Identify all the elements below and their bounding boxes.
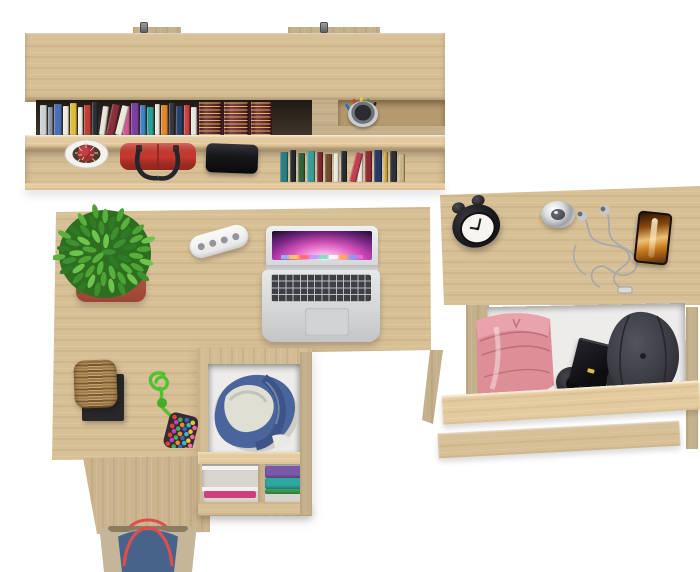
book-spine xyxy=(250,102,272,135)
book-spine xyxy=(40,105,47,135)
book-spine xyxy=(317,152,323,182)
book-spine xyxy=(169,103,175,135)
book-spine xyxy=(307,151,315,182)
book-spine xyxy=(325,154,332,182)
white-pot-red-cactus xyxy=(64,139,109,169)
book-spine xyxy=(48,107,53,135)
book-spine xyxy=(78,107,83,135)
laptop-dock xyxy=(281,255,363,259)
book-spine xyxy=(334,153,339,182)
drawer-front-edge xyxy=(198,452,312,464)
book-spine xyxy=(399,154,405,182)
smartphone-screen xyxy=(636,213,671,264)
folded-clothes-stack xyxy=(265,466,305,498)
book-spine xyxy=(147,107,154,135)
shelf-bottom-edge xyxy=(25,183,445,190)
wall-hook xyxy=(140,22,148,33)
book-spine xyxy=(298,153,305,182)
book-spine xyxy=(198,102,222,135)
clock-center xyxy=(476,227,480,231)
book-spine xyxy=(390,151,397,182)
folded-cloth xyxy=(265,466,305,478)
book-spine xyxy=(70,103,77,135)
book-spine xyxy=(84,105,91,135)
box-logo-chip xyxy=(587,368,595,374)
book-spine xyxy=(176,106,183,135)
drawer-bottom-board xyxy=(198,502,312,515)
potted-plant xyxy=(53,202,157,302)
laptop-trackpad xyxy=(305,308,349,336)
denim-tote-bag xyxy=(94,512,202,572)
book-spine xyxy=(365,151,372,182)
smartphone xyxy=(633,210,672,265)
book-spine xyxy=(290,150,296,182)
book-spine xyxy=(191,107,197,135)
pen-cup-body xyxy=(348,101,378,127)
organizer-hole xyxy=(231,232,240,241)
red-handbag xyxy=(118,139,198,183)
wall-hook xyxy=(320,22,328,33)
bead-keychain xyxy=(142,368,204,448)
scene xyxy=(0,0,700,572)
book-spine xyxy=(92,102,98,135)
book-spine xyxy=(161,105,168,135)
drawer-right-wall xyxy=(300,352,312,515)
nightstand-right-rail xyxy=(686,307,698,449)
book-spine xyxy=(374,150,382,182)
shelf-edge xyxy=(202,466,258,470)
laptop-keyboard xyxy=(271,274,371,302)
folded-cloth xyxy=(265,489,305,494)
denim-clothes xyxy=(206,366,302,456)
nightstand-lower-drawer-edge xyxy=(438,421,681,459)
wicker-basket xyxy=(73,359,118,408)
book-spine xyxy=(280,152,288,182)
screen-highlight xyxy=(648,218,658,258)
book-row-bottom xyxy=(278,147,432,182)
book-spine xyxy=(155,104,160,135)
organizer-hole xyxy=(197,242,206,251)
book-spine xyxy=(131,103,139,135)
book-spine xyxy=(140,105,146,135)
organizer-hole xyxy=(208,239,217,248)
folded-cloth-accent xyxy=(204,491,256,498)
book-spine xyxy=(223,102,249,135)
book-spine xyxy=(184,105,190,135)
folded-cloth xyxy=(265,478,305,489)
book-spine xyxy=(341,151,347,182)
book-spine xyxy=(384,152,388,182)
black-speaker xyxy=(206,143,259,174)
book-spine xyxy=(63,106,69,135)
organizer-hole xyxy=(220,236,229,245)
book-spine xyxy=(54,104,62,135)
compartment-divider xyxy=(258,464,265,502)
book-row-top xyxy=(38,102,314,135)
